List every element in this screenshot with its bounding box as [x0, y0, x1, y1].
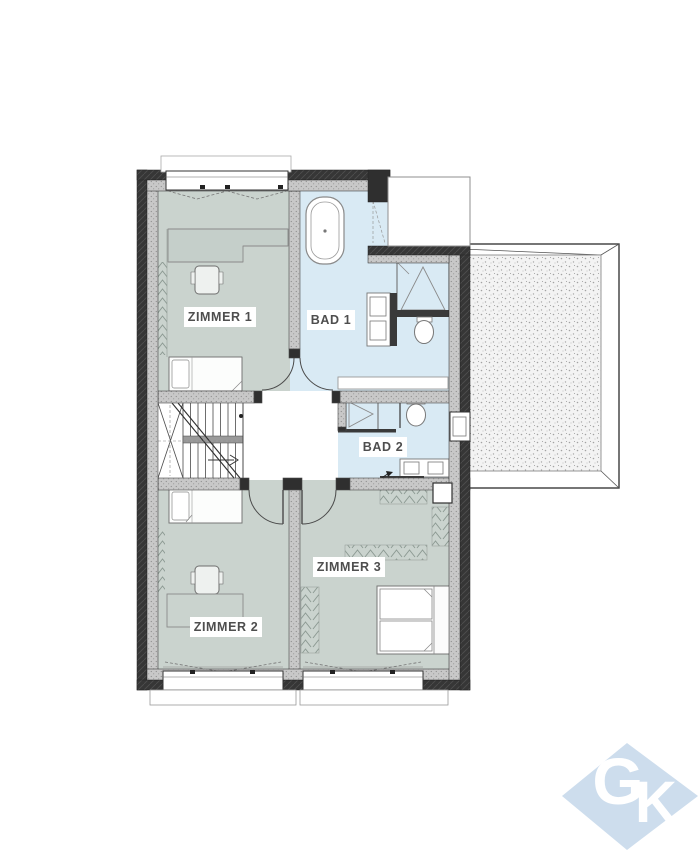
- chair: [191, 566, 223, 594]
- room-label-bad-2: BAD 2: [363, 440, 404, 454]
- toilet-wall: [397, 310, 449, 317]
- toilet: [415, 317, 434, 344]
- wardrobe-hatch: [380, 488, 427, 504]
- washbasin-double: [400, 459, 449, 477]
- hall-and-stairs-floor: [148, 391, 348, 490]
- washbasin-double: [367, 293, 390, 346]
- stair-landing-edge: [183, 436, 243, 443]
- window-sill-top: [161, 156, 291, 172]
- room-label-bad-1: BAD 1: [311, 313, 352, 327]
- window-sill-bottom-left: [150, 690, 296, 705]
- bench-radiator: [338, 377, 448, 389]
- wardrobe-hatch: [301, 587, 319, 653]
- watermark-letter-k: K: [635, 770, 677, 835]
- gk-watermark: G K: [562, 743, 698, 850]
- wall-corner-block: [368, 170, 390, 202]
- window-bottom-left: [163, 671, 283, 690]
- wall-zimmer2-zimmer3: [289, 490, 300, 670]
- wall-zimmer1-bad1: [289, 191, 300, 349]
- single-bed: [169, 489, 242, 523]
- door-leaf: [338, 429, 396, 433]
- chimney-duct: [433, 483, 452, 503]
- wall-hall-bad2: [338, 403, 346, 430]
- newel-post: [239, 414, 243, 418]
- wall-stub: [390, 293, 397, 346]
- terrace-gravel-surface: [466, 255, 601, 471]
- mattress: [380, 589, 432, 619]
- floor-plan-page: ZIMMER 1 BAD 1 BAD 2 ZIMMER 3 ZIMMER 2 G…: [0, 0, 700, 862]
- double-bed: [377, 586, 451, 654]
- single-bed: [169, 357, 242, 391]
- window-bottom-right: [303, 671, 423, 690]
- terrace: [462, 244, 619, 488]
- pillow: [172, 492, 189, 520]
- chair: [191, 266, 223, 294]
- wardrobe-hatch: [432, 507, 450, 546]
- roof-void: [388, 177, 470, 246]
- room-label-zimmer-1: ZIMMER 1: [188, 310, 253, 324]
- room-label-zimmer-2: ZIMMER 2: [194, 620, 259, 634]
- window-sill-bottom-right: [300, 690, 448, 705]
- floor-plan-drawing: ZIMMER 1 BAD 1 BAD 2 ZIMMER 3 ZIMMER 2 G…: [0, 0, 700, 862]
- bathtub: [306, 197, 344, 264]
- pillow: [172, 360, 189, 388]
- room-label-zimmer-3: ZIMMER 3: [317, 560, 382, 574]
- mattress: [380, 621, 432, 651]
